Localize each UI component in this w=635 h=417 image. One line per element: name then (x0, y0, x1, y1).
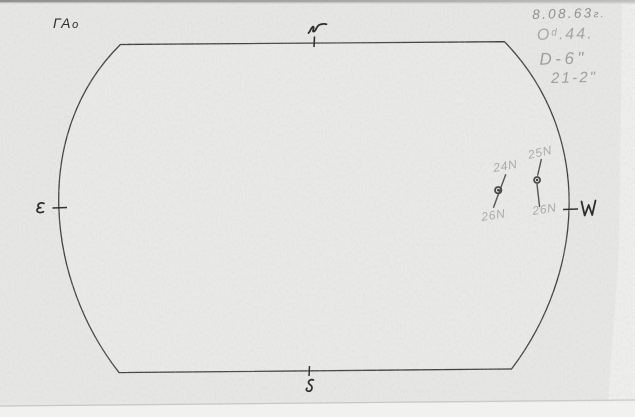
svg-text:Оd.44.: Оd.44. (537, 25, 594, 43)
svg-text:D-6": D-6" (539, 49, 587, 69)
svg-text:21-2": 21-2" (550, 69, 598, 87)
